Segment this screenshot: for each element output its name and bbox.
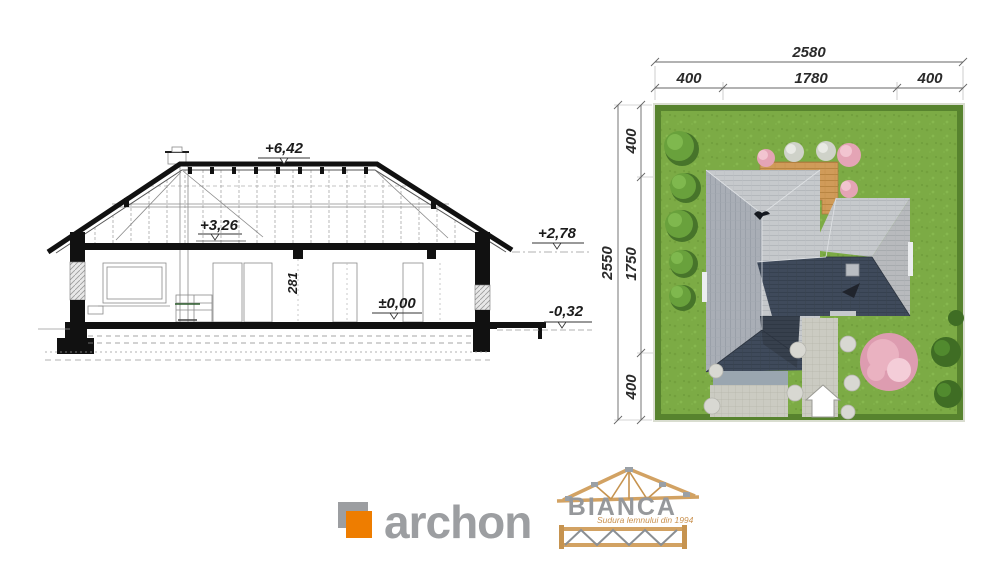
dim-top-left: 400 [675, 70, 702, 87]
dim-left-middle: 1750 [623, 247, 640, 281]
room-height-label: 281 [285, 272, 300, 295]
level-ridge: +6,42 [258, 140, 310, 164]
dim-top-total: 2580 [791, 44, 826, 61]
window-sill-right [908, 242, 913, 276]
dimension-top: 2580 400 1780 400 [651, 44, 967, 100]
blossom-tree [860, 333, 918, 391]
level-floor: ±0,00 [372, 295, 422, 319]
dim-top-middle: 1780 [794, 70, 828, 87]
branding-footer: archon [338, 458, 698, 548]
roof-chimney [846, 264, 859, 276]
level-eaves: +2,78 [512, 225, 592, 252]
level-ground: -0,32 [544, 303, 592, 328]
ceiling-slab [70, 243, 489, 250]
level-floor-label: ±0,00 [378, 295, 416, 312]
site-plan: 2580 400 1780 400 2550 400 1750 400 [599, 44, 967, 424]
level-ridge-label: +6,42 [265, 140, 304, 157]
level-attic-label: +3,26 [200, 217, 239, 234]
level-eaves-label: +2,78 [538, 225, 577, 242]
roof-truss-beams [112, 171, 500, 248]
window-sill-left [702, 272, 707, 302]
archon-orange-square [346, 511, 372, 538]
window-sill-front [830, 311, 856, 316]
plot [654, 104, 964, 421]
dim-left-bottom: 400 [623, 374, 640, 401]
archon-logo: archon [338, 482, 531, 542]
dim-top-right: 400 [916, 70, 943, 87]
dim-left-total: 2550 [599, 246, 616, 281]
archon-logo-mark-icon [338, 498, 378, 542]
bianca-tagline: Sudura lemnului din 1994 [553, 515, 693, 525]
roof-outline [48, 164, 512, 253]
wall-left [70, 232, 85, 322]
level-ground-label: -0,32 [549, 303, 584, 320]
wall-right [475, 232, 490, 322]
dim-left-top: 400 [623, 128, 640, 155]
bianca-logo: BIANCA Sudura lemnului din 1994 [553, 463, 703, 549]
cross-section-drawing: +6,42 +3,26 +2,78 ±0,00 -0,32 281 [38, 140, 592, 360]
dimension-left: 2550 400 1750 400 [599, 101, 655, 424]
archon-wordmark: archon [384, 502, 531, 542]
